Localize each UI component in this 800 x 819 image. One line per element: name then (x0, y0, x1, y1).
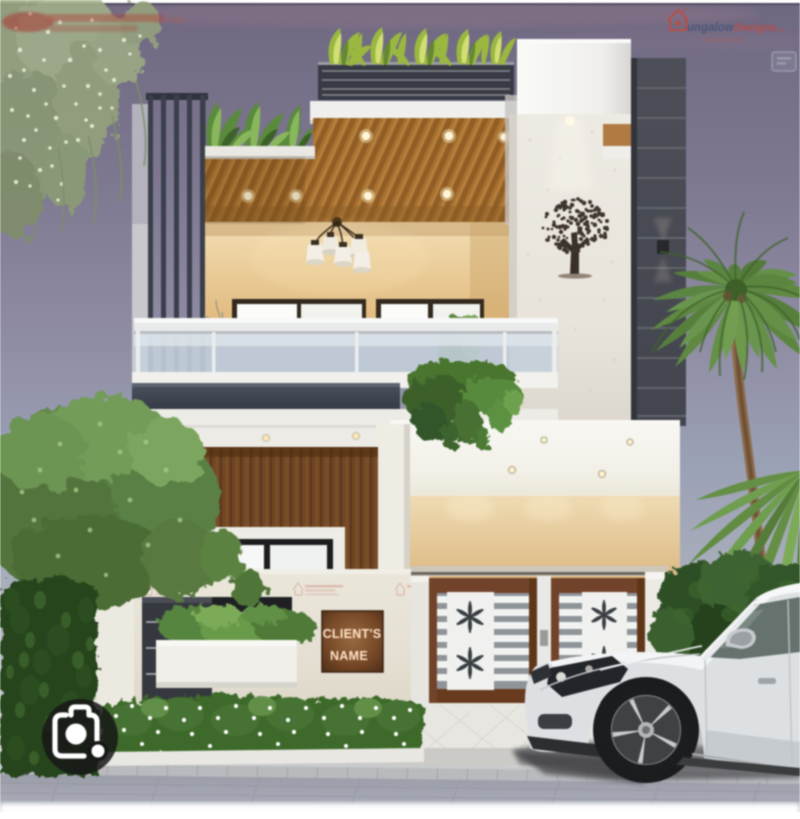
svg-text:CLIENT'S: CLIENT'S (323, 627, 382, 641)
svg-text:Turning Dreams: Turning Dreams (700, 38, 743, 44)
svg-text:ungalow: ungalow (687, 22, 735, 34)
svg-text:Designs...: Designs... (734, 22, 786, 34)
svg-text:NAME: NAME (330, 649, 368, 663)
